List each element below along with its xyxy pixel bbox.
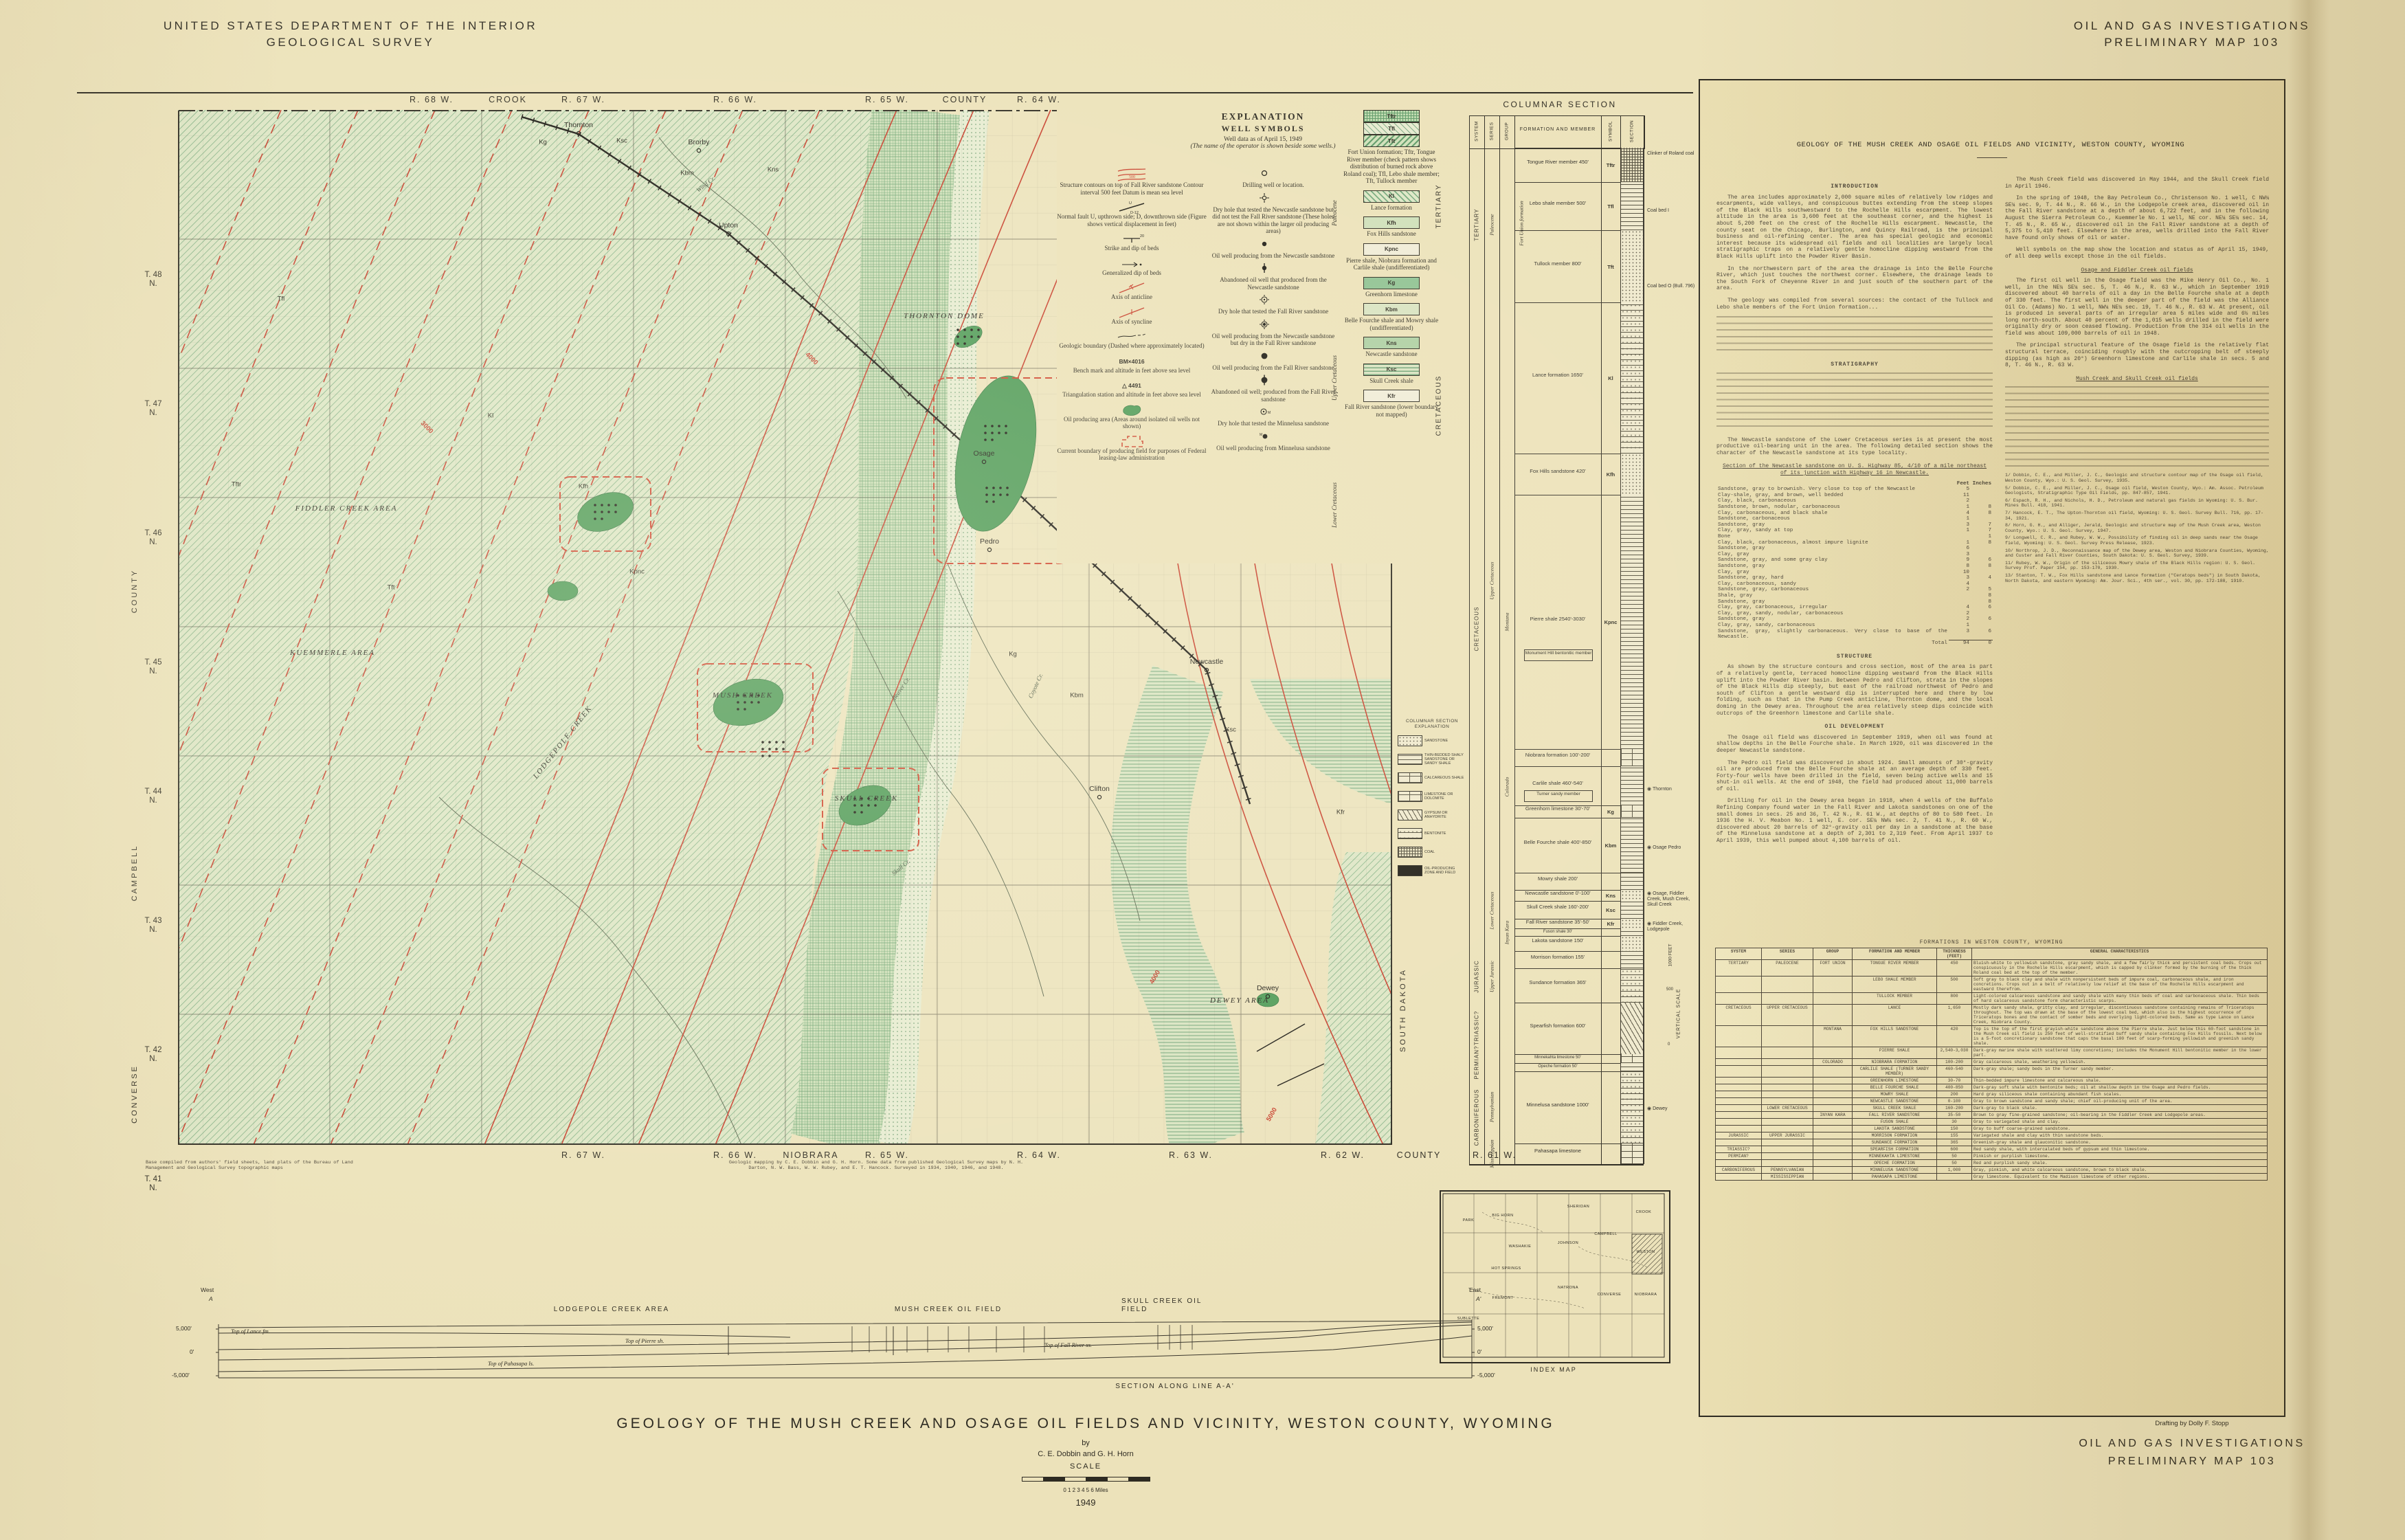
cross-section-canvas <box>199 1286 1491 1390</box>
columnar-litho-strip <box>1620 919 1644 928</box>
litho-swatch <box>1398 847 1422 858</box>
map-symbol-item: Current boundary of producing field for … <box>1057 436 1207 462</box>
formations-header: SYSTEM <box>1716 948 1762 960</box>
columnar-symbol-kns: Kns <box>1601 893 1620 899</box>
columnar-explanation-item: SANDSTONE <box>1398 735 1466 747</box>
map-symbol-item: Axis of anticline <box>1057 282 1207 301</box>
map-symbol-item: Oil producing area (Areas around isolate… <box>1057 405 1207 430</box>
range-label-top: R. 68 W. <box>410 95 454 104</box>
columnar-formation: Minnekahta limestone 50' <box>1516 1055 1600 1063</box>
unit-legend-item: KpncPierre shale, Niobrara formation and… <box>1340 243 1443 271</box>
xs-elev-right-0: 5,000' <box>1477 1325 1493 1332</box>
formations-table: FORMATIONS IN WESTON COUNTY, WYOMING SYS… <box>1715 939 2268 1181</box>
columnar-symbol-kfr: Kfr <box>1601 921 1620 927</box>
measured-section-row: Sandstone, gray, and some gray clay96 <box>1716 557 1993 563</box>
formations-table-title: FORMATIONS IN WESTON COUNTY, WYOMING <box>1715 939 2268 946</box>
measured-section-row: Clay, gray, sandy at top17 <box>1716 528 1993 534</box>
formations-row: LAKOTA SANDSTONE150Gray to buff coarse-g… <box>1716 1126 2268 1132</box>
area-label: SKULL CREEK <box>835 794 898 803</box>
county-label: CONVERSE <box>131 1064 139 1124</box>
map-unit-legend: TftrTflTftFort Union formation; Tftr, To… <box>1340 110 1443 423</box>
measured-section-row: Sandstone, gray37 <box>1716 522 1993 528</box>
litho-swatch-label: COAL <box>1424 850 1464 854</box>
geologic-boundary-icon <box>1057 331 1207 342</box>
index-county-hot-springs: HOT SPRINGS <box>1491 1266 1521 1271</box>
formations-row: TULLOCK MEMBER800Light-colored calcareou… <box>1716 993 2268 1005</box>
scale-bar-segment <box>1108 1477 1129 1482</box>
xs-elev-right-1: 0' <box>1477 1348 1481 1355</box>
section-subheading: Osage and Fiddler Creek oil fields <box>2011 267 2263 274</box>
oil-well-fall-river-icon <box>1211 353 1336 364</box>
well-symbol-item: Oil well producing from the Fall River s… <box>1211 353 1336 372</box>
formations-row: CARBONIFEROUSPENNSYLVANIANMINNELUSA SAND… <box>1716 1167 2268 1174</box>
measured-section-row: Clay, black, carbonaceous, almost impure… <box>1716 540 1993 546</box>
scale-label: SCALE <box>467 1462 1704 1471</box>
township-label: T. 47 N. <box>143 400 164 418</box>
map-symbol-legend: 500Structure contours on top of Fall Riv… <box>1057 170 1207 468</box>
formations-row: FUSON SHALE30Gray to variegated shale an… <box>1716 1119 2268 1126</box>
measured-section-row: Sandstone, carbonaceous1 <box>1716 516 1993 522</box>
series-line2: PRELIMINARY MAP 103 <box>2048 36 2336 49</box>
section-heading: STRUCTURE <box>1716 654 1993 660</box>
map-symbol-item-label: Bench mark and altitude in feet above se… <box>1057 367 1207 375</box>
litho-swatch <box>1398 810 1422 821</box>
columnar-formation: Lakota sandstone 150' <box>1516 938 1600 950</box>
columnar-annotation: ◉ Osage, Fiddler Creek, Mush Creek, Skul… <box>1647 891 1697 908</box>
town-label: Clifton <box>1089 785 1110 793</box>
operator-note: (The name of the operator is shown besid… <box>1160 143 1366 150</box>
columnar-annotation: Coal bed I <box>1647 208 1697 214</box>
area-label: LODGEPOLE CREEK <box>532 704 594 780</box>
columnar-annotation: ◉ Dewey <box>1647 1106 1697 1112</box>
explanation-subtitle: WELL SYMBOLS <box>1160 124 1366 134</box>
series-paleocene: Paleocene <box>1331 200 1338 225</box>
unit-box-kns: Kns <box>1363 337 1420 349</box>
svg-text:500: 500 <box>1129 175 1135 179</box>
unit-code-label: Ksc <box>1225 726 1236 734</box>
columnar-litho-strip <box>1620 766 1644 805</box>
formations-row: LOWER CRETACEOUSSKULL CREEK SHALE160-200… <box>1716 1105 2268 1112</box>
measured-section-row: Clay, carbonaceous, and black shale48 <box>1716 511 1993 517</box>
columnar-header-series: SERIES <box>1490 122 1495 141</box>
columnar-litho-strip <box>1620 1054 1644 1063</box>
series-header: OIL AND GAS INVESTIGATIONS PRELIMINARY M… <box>2048 19 2336 49</box>
columnar-formation: Belle Fourche shale 400'-850' <box>1516 840 1600 852</box>
columnar-formation: Pierre shale 2540'-3030' <box>1516 616 1600 629</box>
well-symbol-item-label: Drilling well or location. <box>1211 181 1336 189</box>
measured-section-row: Clay-shale, gray, and brown, well bedded… <box>1716 493 1993 499</box>
township-label: T. 43 N. <box>143 917 164 935</box>
paragraph: In the spring of 1948, the Bay Petroleum… <box>2005 195 2269 241</box>
columnar-formation: Morrison formation 155' <box>1516 955 1600 967</box>
xs-area-lodgepole: LODGEPOLE CREEK AREA <box>554 1306 669 1313</box>
unit-legend-item: KlLance formation <box>1340 190 1443 212</box>
bench-mark-icon: BM×4016 <box>1057 356 1207 367</box>
columnar-formation: Fox Hills sandstone 420' <box>1516 469 1600 481</box>
columnar-litho-strip <box>1620 951 1644 968</box>
map-symbol-item-label: Oil producing area (Areas around isolate… <box>1057 416 1207 430</box>
title-year: 1949 <box>467 1497 1704 1508</box>
measured-section-row: Sandstone, gray6 <box>1716 546 1993 552</box>
columnar-side-permian: PERMIAN? <box>1474 1046 1480 1080</box>
measured-section-row: Sandstone, gray, carbonaceous25 <box>1716 587 1993 593</box>
range-label-top: R. 65 W. <box>865 95 909 104</box>
map-symbol-item: 500Structure contours on top of Fall Riv… <box>1057 170 1207 196</box>
well-symbol-legend: Drilling well or location.Dry hole that … <box>1211 170 1336 458</box>
measured-section-row: Clay, gray, sandy, carbonaceous1 <box>1716 623 1993 629</box>
columnar-side-carboniferous: CARBONIFEROUS <box>1474 1089 1480 1146</box>
xs-elev-left-1: 0' <box>190 1348 194 1355</box>
formations-row: JURASSICUPPER JURASSICMORRISON FORMATION… <box>1716 1132 2268 1139</box>
columnar-annotation: ◉ Thornton <box>1647 787 1697 792</box>
columnar-formation: Minnelusa sandstone 1000' <box>1516 1102 1600 1115</box>
agency-header: UNITED STATES DEPARTMENT OF THE INTERIOR… <box>158 19 543 49</box>
well-symbol-item: Dry hole that tested the Fall River sand… <box>1211 297 1336 315</box>
well-symbol-item: Oil well producing from the Newcastle sa… <box>1211 241 1336 260</box>
xs-area-skull-creek: SKULL CREEK OIL FIELD <box>1121 1297 1231 1314</box>
xs-top-pierre: Top of Pierre sh. <box>625 1337 664 1344</box>
scale-bar: 0 1 2 3 4 5 6 Miles <box>467 1473 1704 1493</box>
unit-legend-label: Pierre shale, Niobrara formation and Car… <box>1341 257 1442 271</box>
creek-label: Wind Cr. <box>695 175 717 193</box>
xs-top-lance: Top of Lance fm. <box>231 1328 270 1335</box>
xs-elev-left-2: -5,000' <box>172 1372 190 1379</box>
formations-row: INYAN KARAFALL RIVER SANDSTONE35-50Brown… <box>1716 1112 2268 1119</box>
paragraph: The Newcastle sandstone of the Lower Cre… <box>1716 437 1993 457</box>
map-symbol-item: UD-12Normal fault U, upthrown side; D, d… <box>1057 202 1207 227</box>
map-symbol-item-label: Structure contours on top of Fall River … <box>1057 181 1207 196</box>
paper-crease <box>2288 0 2329 1540</box>
well-symbol-item-label: Oil well producing from the Newcastle sa… <box>1211 252 1336 260</box>
map-title: GEOLOGY OF THE MUSH CREEK AND OSAGE OIL … <box>467 1416 1704 1432</box>
unit-legend-label: Newcastle sandstone <box>1341 350 1442 358</box>
unit-box-kg: Kg <box>1363 277 1420 289</box>
map-symbol-item: BM×4016Bench mark and altitude in feet a… <box>1057 356 1207 375</box>
cross-section: West A East A' LODGEPOLE CREEK AREA MUSH… <box>199 1286 1491 1400</box>
columnar-side-tertiary: TERTIARY <box>1474 208 1480 241</box>
columnar-formation: Spearfish formation 600' <box>1516 1023 1600 1036</box>
columnar-litho-strip <box>1620 873 1644 890</box>
geology-credit: Geologic mapping by C. E. Dobbin and G. … <box>728 1160 1024 1171</box>
formations-header: GENERAL CHARACTERISTICS <box>1972 948 2268 960</box>
columnar-formation: Newcastle sandstone 0'-100' <box>1516 891 1600 901</box>
measured-section-row: Sandstone, brown, nodular, carbonaceous1… <box>1716 504 1993 511</box>
svg-text:M: M <box>1268 411 1271 415</box>
text-column-right: The Mush Creek field was discovered in M… <box>2005 177 2269 933</box>
footnote: 6/ Espach, R. H., and Nichols, H. D., Pe… <box>2005 498 2269 509</box>
xs-west: West <box>201 1286 214 1293</box>
paragraph: Well symbols on the map show the locatio… <box>2005 247 2269 260</box>
area-label: THORNTON DOME <box>904 312 985 320</box>
formations-row: MONTANAFOX HILLS SANDSTONE420Top is the … <box>1716 1026 2268 1047</box>
measured-section-row: Sandstone, gray, hard34 <box>1716 575 1993 581</box>
columnar-header <box>1469 115 1645 149</box>
map-symbol-item-label: Axis of anticline <box>1057 293 1207 301</box>
litho-swatch <box>1398 828 1422 839</box>
unit-code-label: Kbm <box>1070 692 1084 700</box>
range-label-top: R. 64 W. <box>1017 95 1061 104</box>
columnar-explanation-item: BENTONITE <box>1398 827 1466 840</box>
county-label: COUNTY <box>131 569 139 613</box>
columnar-litho-strip <box>1620 302 1644 454</box>
unit-box-kfr: Kfr <box>1363 390 1420 402</box>
formations-row: MISSISSIPPIANPAHASAPA LIMESTONEGray lime… <box>1716 1174 2268 1181</box>
footnote: 9/ Longwell, C. R., and Rubey, W. W., Po… <box>2005 535 2269 546</box>
description-sheet: GEOLOGY OF THE MUSH CREEK AND OSAGE OIL … <box>1699 79 2285 1417</box>
unit-box-kpnc: Kpnc <box>1363 243 1420 256</box>
footnote: 5/ Dobbin, C. E., and Miller, J. C., Osa… <box>2005 486 2269 496</box>
well-symbol-item-label: Dry hole that tested the Fall River sand… <box>1211 308 1336 315</box>
columnar-side-jurassic: JURASSIC <box>1474 960 1480 993</box>
formations-row: BELLE FOURCHE SHALE400-850Dark-gray soft… <box>1716 1084 2268 1091</box>
unit-box-tfl: Tfl <box>1363 122 1420 135</box>
footnote: 7/ Hancock, E. T., The Upton-Thornton oi… <box>2005 511 2269 521</box>
contour-value-label: 4000 <box>1148 969 1162 985</box>
map-symbol-item: 20Strike and dip of beds <box>1057 234 1207 252</box>
columnar-annotation: ◉ Osage Pedro <box>1647 845 1697 851</box>
columnar-litho-strip <box>1620 928 1644 936</box>
measured-section-row: Sandstone, gray8 <box>1716 599 1993 605</box>
paragraph: Drilling for oil in the Dewey area began… <box>1716 798 1993 844</box>
columnar-explanation-item: CALCAREOUS SHALE <box>1398 772 1466 784</box>
unit-legend-item: KfrFall River sandstone (lower boundary … <box>1340 390 1443 418</box>
columnar-section: COLUMNAR SECTION SYSTEMSERIESGROUPFORMAT… <box>1467 100 1697 1179</box>
columnar-symbol-tftr: Tftr <box>1601 162 1620 168</box>
range-label-top: R. 66 W. <box>713 95 757 104</box>
contour-value-label: 4000 <box>804 351 820 367</box>
range-label-bottom: NIOBRARA <box>783 1150 838 1160</box>
columnar-column-line <box>1499 115 1500 1164</box>
unit-legend-item: TftrTflTftFort Union formation; Tftr, To… <box>1340 110 1443 185</box>
measured-section-row: Clay, gray3 <box>1716 552 1993 558</box>
columnar-symbol-kbm: Kbm <box>1601 842 1620 849</box>
litho-swatch-label: OIL-PRODUCING ZONE AND FIELD <box>1424 867 1464 875</box>
normal-fault-icon: UD-12 <box>1057 202 1207 213</box>
well-symbol-item-label: Dry hole that tested the Minnelusa sands… <box>1211 420 1336 427</box>
columnar-formation: Greenhorn limestone 30'-70' <box>1516 806 1600 818</box>
unit-box-kbm: Kbm <box>1363 303 1420 315</box>
columnar-symbol-kfh: Kfh <box>1601 471 1620 478</box>
well-symbol-icon: ◉ <box>1647 845 1653 850</box>
unit-code-label: Kns <box>768 166 779 174</box>
unit-box-kl: Kl <box>1363 190 1420 203</box>
top-rule <box>77 92 1693 93</box>
township-label: T. 42 N. <box>143 1046 164 1064</box>
area-label: DEWEY AREA <box>1210 996 1269 1005</box>
town-label: Thornton <box>564 121 593 129</box>
township-label: T. 41 N. <box>143 1175 164 1193</box>
scale-bar-segment <box>1065 1477 1086 1482</box>
footnote: 13/ Stanton, T. W., Fox Hills sandstone … <box>2005 573 2269 583</box>
index-county-fremont: FREMONT <box>1492 1296 1514 1300</box>
unit-legend-label: Lance formation <box>1341 204 1442 212</box>
measured-section-total: Total940 <box>1716 640 1993 647</box>
vertical-scale-0: 0 <box>1668 1042 1670 1047</box>
section-heading: OIL DEVELOPMENT <box>1716 724 1993 730</box>
columnar-formation: Pahasapa limestone <box>1516 1148 1600 1161</box>
columnar-formation: Opeche formation 50' <box>1516 1064 1600 1071</box>
columnar-side-pennsylvanian: Pennsylvanian <box>1489 1092 1495 1122</box>
explanation-panel: EXPLANATION WELL SYMBOLS Well data as of… <box>1057 110 1443 563</box>
columnar-formation: Fuson shale 30' <box>1516 929 1600 936</box>
series-upper-cretaceous: Upper Cretaceous <box>1331 355 1338 401</box>
columnar-annotation: Clinker of Roland coal <box>1647 151 1697 157</box>
columnar-column-line <box>1484 115 1485 1164</box>
paragraph: The Osage oil field was discovered in Se… <box>1716 735 1993 755</box>
text-continues <box>2005 386 2269 467</box>
litho-swatch <box>1398 772 1422 783</box>
well-symbol-icon: ◉ <box>1647 787 1653 792</box>
formations-header: THICKNESS (FEET) <box>1937 948 1972 960</box>
map-symbol-item-label: Axis of syncline <box>1057 318 1207 326</box>
map-symbol-item-label: Normal fault U, upthrown side; D, downth… <box>1057 213 1207 227</box>
measured-section-row: Clay, gray, carbonaceous, irregular46 <box>1716 605 1993 611</box>
paragraph: The principal structural feature of the … <box>2005 342 2269 368</box>
columnar-litho-strip <box>1620 148 1644 182</box>
formations-row: TRIASSIC?SPEARFISH FORMATION600Red sandy… <box>1716 1146 2268 1153</box>
unit-code-label: Kl <box>488 412 493 420</box>
unit-box-kfh: Kfh <box>1363 216 1420 229</box>
well-symbol-item: Dry hole that tested the Newcastle sands… <box>1211 195 1336 235</box>
columnar-header-system: SYSTEM <box>1475 121 1479 142</box>
town-label: Osage <box>974 449 995 458</box>
agency-line1: UNITED STATES DEPARTMENT OF THE INTERIOR <box>158 19 543 33</box>
structure-contours-icon: 500 <box>1057 170 1207 181</box>
well-symbol-icon: ◉ <box>1647 891 1653 896</box>
formations-row: MOWRY SHALE200Hard gray siliceous shale … <box>1716 1091 2268 1098</box>
map-sheet: UNITED STATES DEPARTMENT OF THE INTERIOR… <box>0 0 2405 1540</box>
oil-well-minnelusa-icon: M <box>1211 434 1336 445</box>
columnar-formation: Sundance formation 365' <box>1516 980 1600 992</box>
series-lower-cretaceous: Lower Cretaceous <box>1331 482 1338 528</box>
paragraph: The area includes approximately 2,000 sq… <box>1716 194 1993 260</box>
index-county-campbell: CAMPBELL <box>1594 1232 1617 1236</box>
syncline-axis-icon <box>1057 307 1207 318</box>
unit-legend-label: Fort Union formation; Tftr, Tongue River… <box>1341 148 1442 185</box>
columnar-explanation-item: THIN-BEDDED SHALY SANDSTONE OR SANDY SHA… <box>1398 753 1466 766</box>
creek-label: Skull Cr. <box>891 858 911 877</box>
footnote: 1/ Dobbin, C. E., and Miller, J. C., Geo… <box>2005 473 2269 483</box>
well-symbol-item: Oil well producing from the Newcastle sa… <box>1211 322 1336 347</box>
area-label: MUSH CREEK <box>713 691 773 700</box>
measured-section-row: Clay, black, carbonaceous2 <box>1716 498 1993 504</box>
unit-legend-item: KfhFox Hills sandstone <box>1340 216 1443 238</box>
footer-series: OIL AND GAS INVESTIGATIONS <box>2048 1438 2336 1450</box>
columnar-side-upperjurassic: Upper Jurassic <box>1489 961 1495 992</box>
columnar-formation: Tongue River member 450' <box>1516 159 1600 172</box>
county-label: CAMPBELL <box>131 845 139 902</box>
columnar-litho-strip <box>1620 495 1644 749</box>
system-cretaceous: CRETACEOUS <box>1435 375 1443 436</box>
columnar-litho-strip <box>1620 901 1644 919</box>
footnote: 11/ Rubey, W. W., Origin of the siliceou… <box>2005 561 2269 571</box>
columnar-formation: Lebo shale member 500' <box>1516 201 1600 213</box>
map-symbol-item-label: Triangulation station and altitude in fe… <box>1057 391 1207 399</box>
generalized-dip-icon <box>1057 258 1207 269</box>
unit-box-tftr: Tftr <box>1363 110 1420 122</box>
range-label-bottom: R. 66 W. <box>713 1150 757 1160</box>
columnar-column-line <box>1469 115 1470 1164</box>
creek-label: Coyote Cr. <box>1027 672 1044 699</box>
columnar-column-line <box>1514 115 1515 1164</box>
unit-legend-label: Fall River sandstone (lower boundary not… <box>1341 403 1442 418</box>
columnar-litho-strip <box>1620 1063 1644 1071</box>
columnar-litho-strip <box>1620 454 1644 495</box>
area-label: KUEMMERLE AREA <box>290 649 375 657</box>
measured-section-row: Clay, carbonaceous, sandy4 <box>1716 581 1993 588</box>
paragraph: The first oil well in the Osage field wa… <box>2005 278 2269 337</box>
formations-row: SUNDANCE FORMATION365Greenish-gray shale… <box>1716 1139 2268 1146</box>
town-label: Upton <box>719 221 738 230</box>
section-subheading: Section of the Newcastle sandstone on U.… <box>1722 463 1987 476</box>
formations-row: LEBO SHALE MEMBER500Soft gray to black c… <box>1716 977 2268 993</box>
index-county-converse: CONVERSE <box>1598 1293 1622 1297</box>
sheet-title: GEOLOGY OF THE MUSH CREEK AND OSAGE OIL … <box>1714 141 2268 149</box>
paragraph: The Pedro oil field was discovered in ab… <box>1716 760 1993 793</box>
columnar-formation: Tullock member 800' <box>1516 261 1600 274</box>
formations-row: OPECHE FORMATION50Red and purplish sandy… <box>1716 1160 2268 1167</box>
columnar-symbol-kpnc: Kpnc <box>1601 619 1620 625</box>
columnar-explanation-item: GYPSUM OR ANHYDRITE <box>1398 809 1466 821</box>
unit-code-label: Tfl <box>278 295 285 303</box>
well-data-note: Well data as of April 15, 1949 <box>1160 136 1366 143</box>
unit-code-label: Kpnc <box>629 568 645 576</box>
scale-bar-ticks: 0 1 2 3 4 5 6 Miles <box>467 1487 1704 1493</box>
oil-producing-area-icon <box>1057 405 1207 416</box>
columnar-header-symbol: SYMBOL <box>1609 121 1613 142</box>
unit-code-label: Tft <box>387 584 394 592</box>
well-symbol-item: Drilling well or location. <box>1211 170 1336 189</box>
drafting-credit: Drafting by Dolly F. Stopp <box>2048 1420 2336 1427</box>
columnar-litho-strip <box>1620 805 1644 818</box>
section-subheading: Mush Creek and Skull Creek oil fields <box>2011 376 2263 383</box>
dry-hole-fall-river-icon <box>1211 297 1336 308</box>
columnar-title: COLUMNAR SECTION <box>1467 100 1653 109</box>
litho-swatch <box>1398 735 1422 746</box>
map-symbol-item-label: Strike and dip of beds <box>1057 245 1207 252</box>
columnar-header-section: SECTION <box>1630 120 1635 142</box>
explanation-title: EXPLANATION <box>1160 111 1366 122</box>
unit-code-label: Kbm <box>680 170 694 177</box>
columnar-litho-strip <box>1620 1143 1644 1164</box>
columnar-litho-strip <box>1620 890 1644 901</box>
measured-section-row: Clay, gray10 <box>1716 570 1993 576</box>
abandoned-oil-well-newcastle-icon <box>1211 265 1336 276</box>
measured-section-row: Sandstone, gray88 <box>1716 563 1993 570</box>
columnar-side-paleocene: Paleocene <box>1489 214 1495 235</box>
columnar-side-lowercretaceous: Lower Cretaceous <box>1489 892 1495 930</box>
strike-dip-icon: 20 <box>1057 234 1207 245</box>
range-label-top: COUNTY <box>943 95 987 104</box>
columnar-annotation: Coal bed O (Bull. 796) <box>1647 284 1697 289</box>
columnar-explanation-item: COAL <box>1398 846 1466 858</box>
measured-section-table: FeetInchesSandstone, gray to brownish. V… <box>1716 481 1993 647</box>
litho-swatch <box>1398 865 1422 876</box>
range-label-top: R. 67 W. <box>561 95 605 104</box>
text-continues <box>1716 372 1993 432</box>
formations-row: NEWCASTLE SANDSTONE0-100Gray to brown sa… <box>1716 1098 2268 1105</box>
measured-section-row: Bone1 <box>1716 534 1993 540</box>
columnar-litho-strip <box>1620 818 1644 873</box>
unit-legend-item: KbmBelle Fourche shale and Mowry shale (… <box>1340 303 1443 331</box>
vertical-scale-500: 500 <box>1666 987 1673 992</box>
xs-top-fall-river: Top of Fall River ss. <box>1044 1341 1092 1348</box>
index-county-big-horn: BIG HORN <box>1492 1214 1513 1218</box>
columnar-explanation-item: OIL-PRODUCING ZONE AND FIELD <box>1398 864 1466 877</box>
section-heading: INTRODUCTION <box>1716 183 1993 190</box>
well-symbol-icon: ◉ <box>1647 1106 1653 1111</box>
town-label: Newcastle <box>1190 658 1223 666</box>
